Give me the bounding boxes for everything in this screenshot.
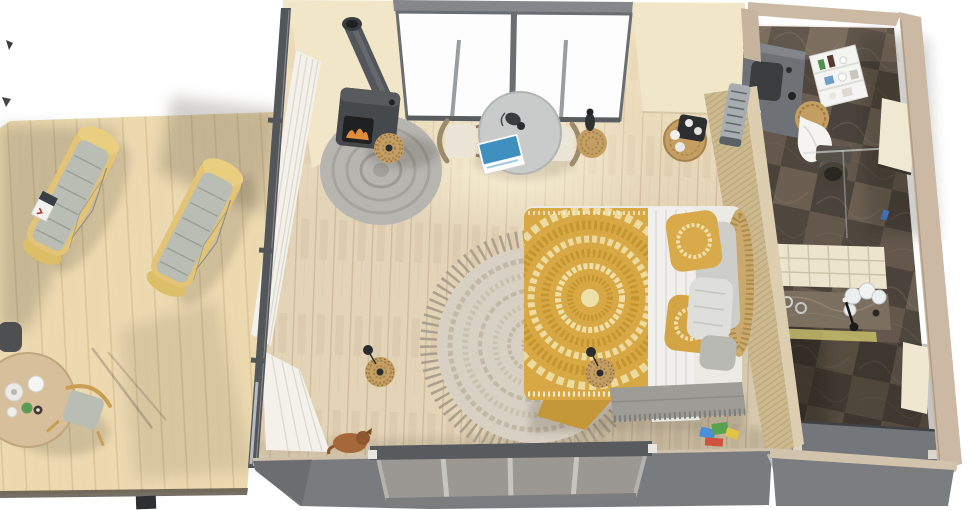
double-bed (502, 206, 754, 432)
glass-wall-crossbar-1 (268, 120, 282, 121)
faucet (786, 67, 792, 73)
candle-jar-3 (872, 290, 886, 304)
wicker-basket-lamp (374, 133, 404, 163)
glass-wall-crossbar-3 (251, 360, 265, 361)
bottom-window-bar-2 (510, 455, 511, 500)
corner-block-right (648, 444, 657, 453)
dark-vase (585, 113, 595, 131)
window-lower-right (901, 342, 930, 414)
deck-footing (136, 496, 156, 510)
module-junction-post (741, 8, 761, 62)
yellow-pillow-top (664, 209, 724, 274)
corner-block-left (368, 450, 377, 459)
partial-chair-at-edge (0, 322, 22, 352)
white-quilted-pillow (686, 277, 734, 342)
render-canvas (0, 0, 970, 510)
wooden-deck (0, 96, 282, 509)
grey-fringe-throw (610, 382, 746, 421)
window-wall-bottom (370, 441, 652, 507)
black-tray (676, 114, 708, 142)
small-grey-pillow (699, 334, 738, 371)
glass-wall-crossbar-2 (259, 250, 273, 251)
corner-block-bathroom-right (928, 450, 937, 459)
counter-drain (873, 310, 880, 317)
tiny-home-aerial-render (0, 0, 970, 510)
